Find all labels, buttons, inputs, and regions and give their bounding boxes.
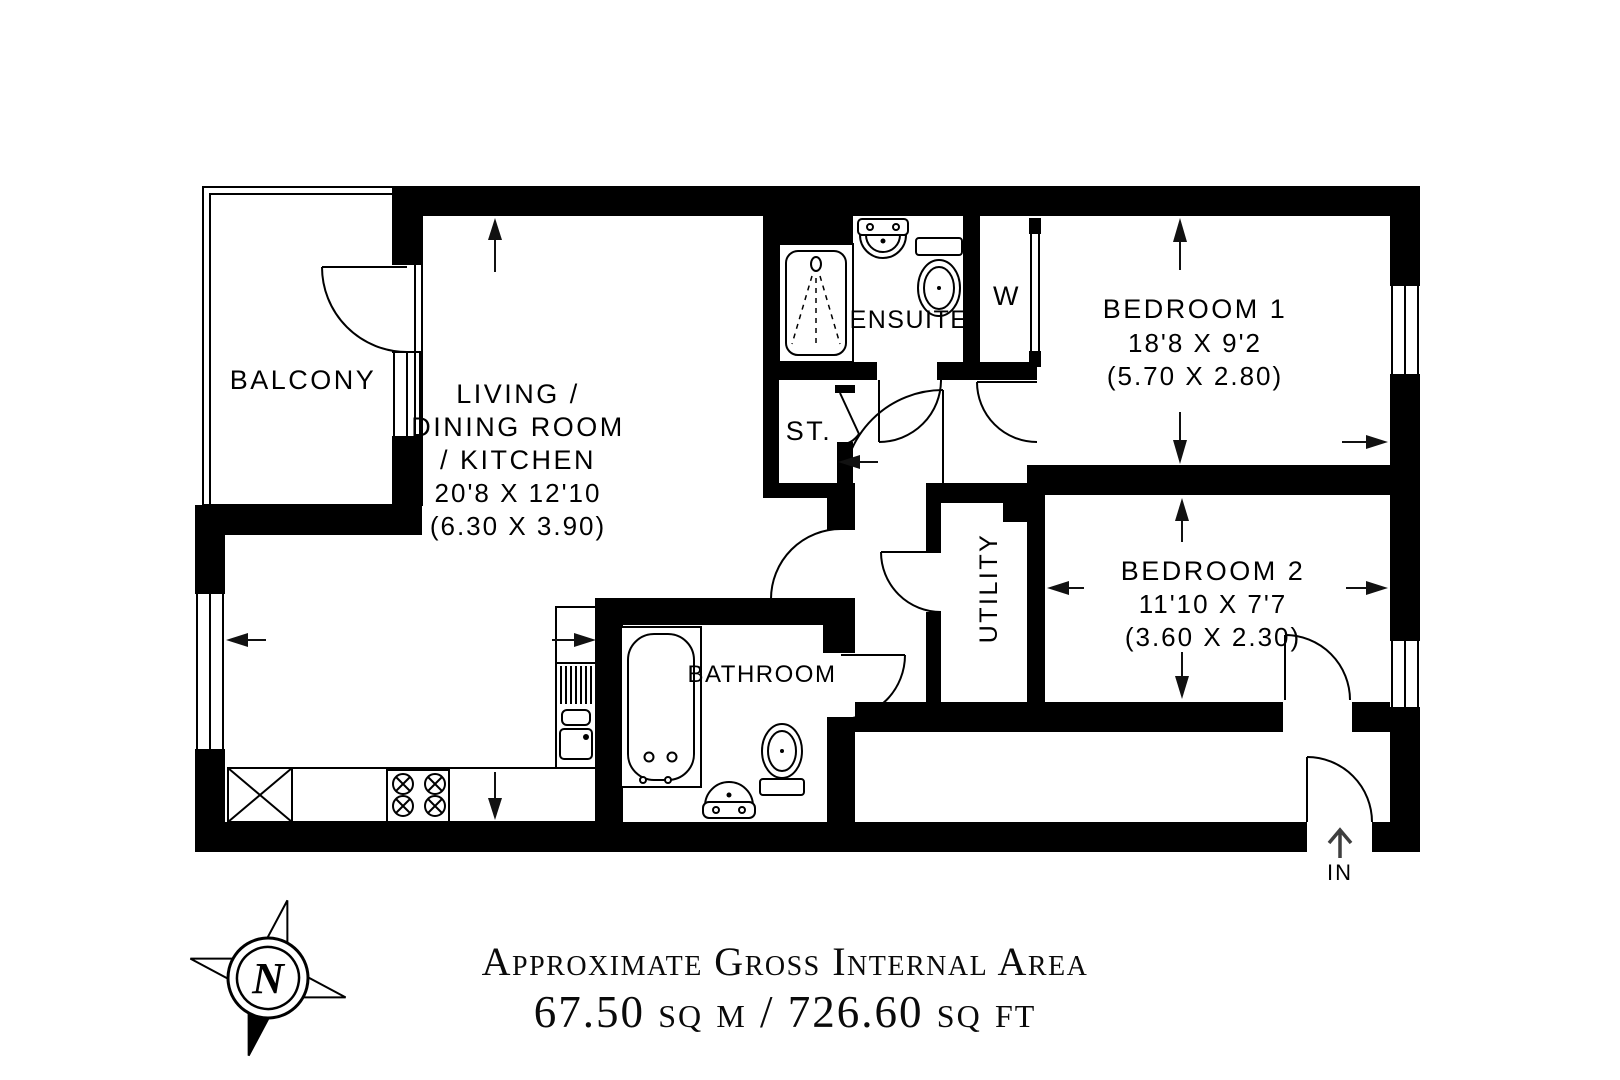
page-background (0, 0, 1620, 1080)
bedroom1-dims-imperial: 18'8 X 9'2 (1128, 328, 1262, 358)
bedroom2-label-block: BEDROOM 2 11'10 X 7'7 (3.60 X 2.30) (1121, 556, 1306, 652)
floor-plan-page: BALCONY LIVING / DINING ROOM / KITCHEN 2… (0, 0, 1620, 1080)
bedroom1-label-block: BEDROOM 1 18'8 X 9'2 (5.70 X 2.80) (1103, 294, 1288, 391)
bedroom1-label: BEDROOM 1 (1103, 294, 1288, 324)
footer-area: 67.50 sq m / 726.60 sq ft (534, 987, 1037, 1037)
living-label-line1: LIVING / (456, 379, 580, 409)
bedroom2-dims-metric: (3.60 X 2.30) (1125, 622, 1301, 652)
entrance-label: IN (1327, 860, 1353, 885)
compass-north-label: N (251, 954, 286, 1003)
storage-label: ST. (786, 416, 833, 446)
floor-plan: BALCONY LIVING / DINING ROOM / KITCHEN 2… (0, 0, 1620, 1080)
utility-label: UTILITY (975, 533, 1003, 644)
bathtub-icon (621, 627, 701, 787)
living-dims-imperial: 20'8 X 12'10 (435, 478, 602, 508)
bathroom-toilet-icon (760, 724, 804, 795)
bedroom1-dims-metric: (5.70 X 2.80) (1107, 361, 1283, 391)
balcony-label: BALCONY (230, 365, 377, 395)
living-label-line3: / KITCHEN (440, 445, 596, 475)
wardrobe-label: W (993, 281, 1021, 311)
bedroom2-dims-imperial: 11'10 X 7'7 (1139, 589, 1288, 619)
ensuite-toilet-icon (916, 238, 962, 316)
bedroom2-label: BEDROOM 2 (1121, 556, 1306, 586)
footer-title: Approximate Gross Internal Area (482, 939, 1089, 984)
shower-icon (779, 244, 853, 362)
bathroom-label: BATHROOM (688, 661, 837, 688)
drainer-icon (556, 663, 596, 704)
ensuite-label: ENSUITE (850, 306, 969, 334)
living-label-line2: DINING ROOM (411, 412, 625, 442)
living-dims-metric: (6.30 X 3.90) (430, 511, 606, 541)
